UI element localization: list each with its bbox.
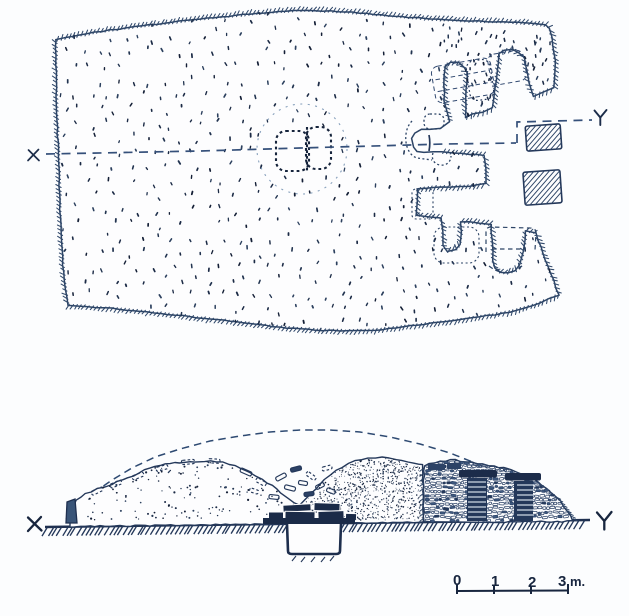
svg-text:1: 1 [491,573,499,590]
svg-text:3: 3 [558,573,566,590]
svg-text:m.: m. [570,574,585,589]
svg-text:2: 2 [528,574,536,591]
svg-text:0: 0 [453,572,461,589]
